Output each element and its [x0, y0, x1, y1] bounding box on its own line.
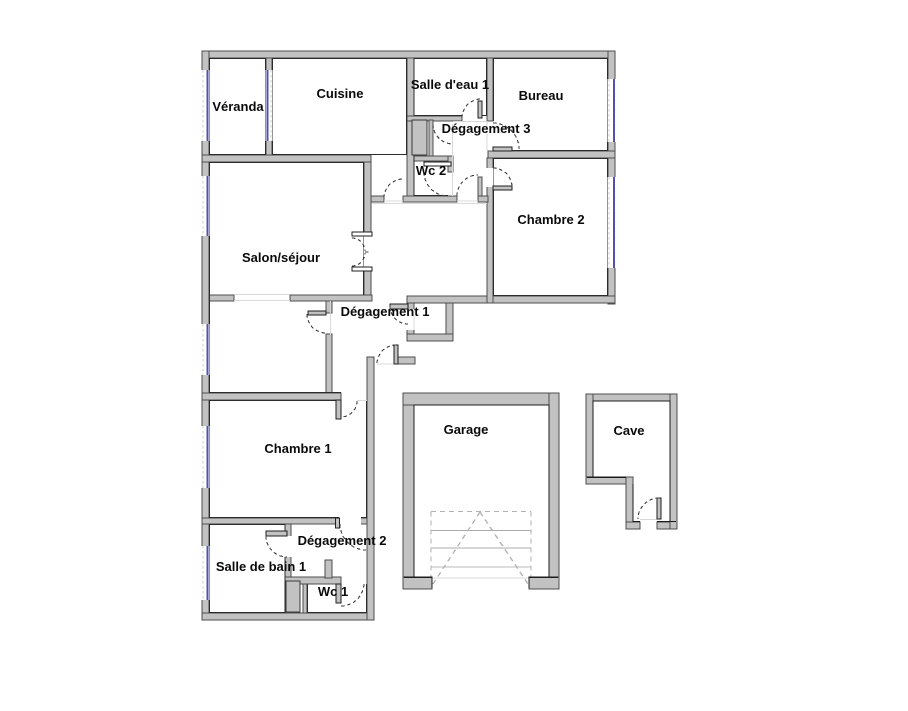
svg-text:Salle d'eau 1: Salle d'eau 1 [411, 77, 489, 92]
svg-text:Cuisine: Cuisine [317, 86, 364, 101]
svg-text:Véranda: Véranda [212, 99, 264, 114]
svg-text:Dégagement 1: Dégagement 1 [341, 304, 430, 319]
svg-text:Dégagement 2: Dégagement 2 [298, 533, 387, 548]
svg-text:Dégagement 3: Dégagement 3 [442, 121, 531, 136]
svg-text:Bureau: Bureau [519, 88, 564, 103]
svg-text:Garage: Garage [444, 422, 489, 437]
svg-text:Wc 2: Wc 2 [416, 163, 446, 178]
svg-text:Wc 1: Wc 1 [318, 584, 348, 599]
svg-text:Chambre 1: Chambre 1 [264, 441, 331, 456]
svg-text:Salon/séjour: Salon/séjour [242, 250, 320, 265]
svg-text:Chambre 2: Chambre 2 [517, 212, 584, 227]
svg-text:Cave: Cave [613, 423, 644, 438]
svg-text:Salle de bain 1: Salle de bain 1 [216, 559, 306, 574]
